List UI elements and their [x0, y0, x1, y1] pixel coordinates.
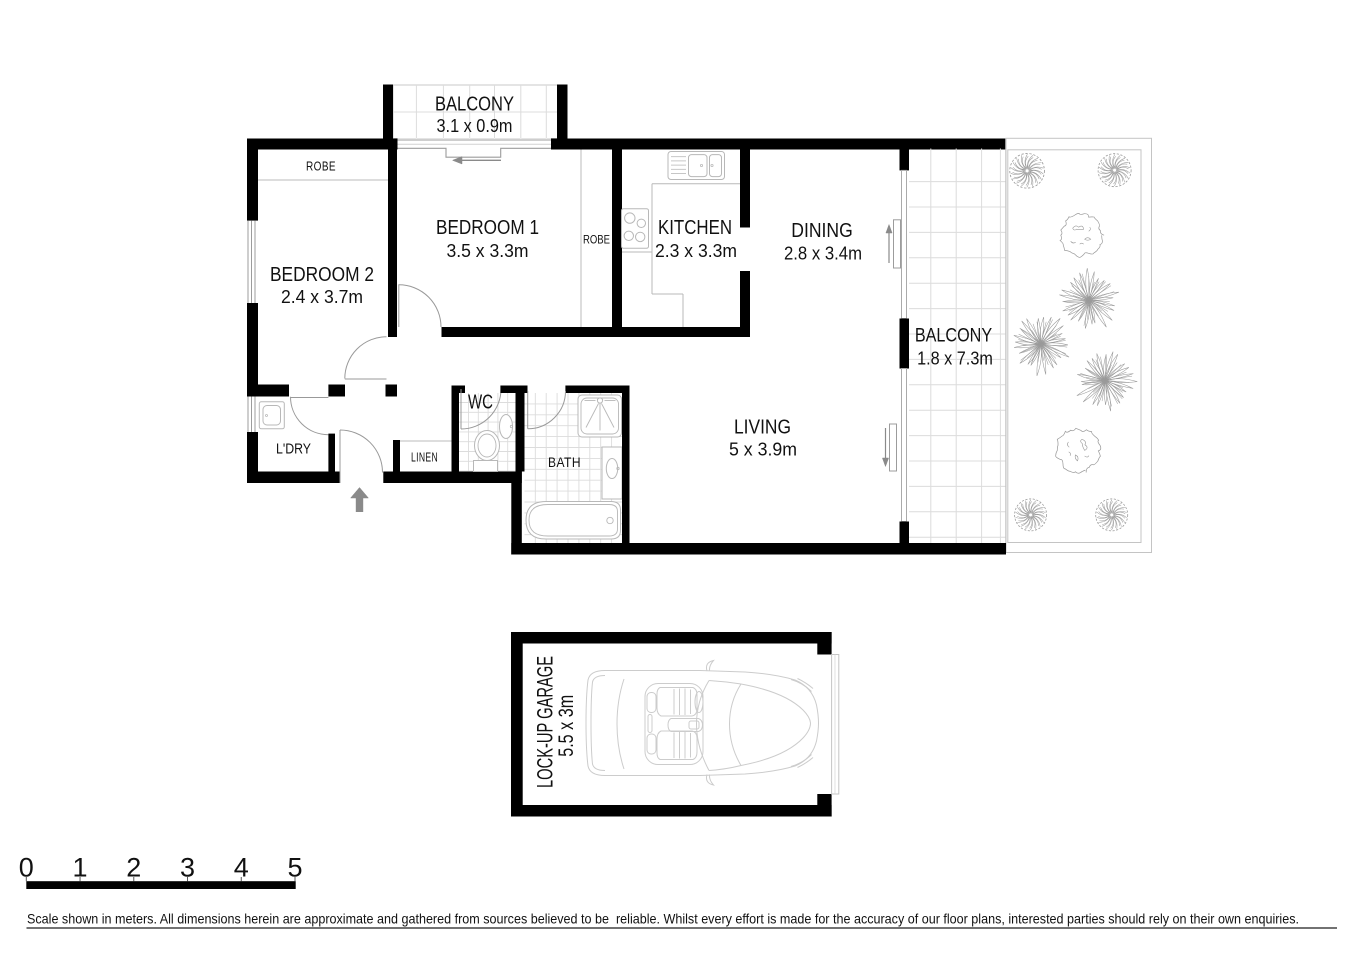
- svg-text:3.5 x 3.3m: 3.5 x 3.3m: [447, 241, 529, 261]
- svg-text:1.8 x 7.3m: 1.8 x 7.3m: [917, 349, 993, 369]
- svg-text:ROBE: ROBE: [306, 160, 336, 174]
- svg-text:LIVING: LIVING: [734, 417, 791, 439]
- svg-text:5 x 3.9m: 5 x 3.9m: [729, 440, 797, 460]
- svg-text:DINING: DINING: [791, 220, 853, 242]
- svg-text:5.5 x 3m: 5.5 x 3m: [555, 695, 578, 757]
- svg-text:2.8 x 3.4m: 2.8 x 3.4m: [784, 244, 862, 264]
- svg-text:KITCHEN: KITCHEN: [658, 217, 732, 239]
- svg-text:LINEN: LINEN: [411, 450, 438, 465]
- svg-text:BEDROOM 1: BEDROOM 1: [436, 217, 539, 239]
- svg-text:LOCK-UP GARAGE: LOCK-UP GARAGE: [533, 656, 558, 788]
- svg-text:WC: WC: [468, 392, 493, 414]
- svg-text:Scale shown in meters. All dim: Scale shown in meters. All dimensions he…: [27, 911, 1299, 927]
- svg-text:2.3 x 3.3m: 2.3 x 3.3m: [655, 241, 737, 261]
- svg-text:2.4 x 3.7m: 2.4 x 3.7m: [281, 287, 363, 307]
- svg-text:L'DRY: L'DRY: [276, 441, 311, 458]
- svg-text:BALCONY: BALCONY: [915, 326, 993, 347]
- svg-text:BEDROOM 2: BEDROOM 2: [270, 264, 374, 286]
- svg-text:3.1 x 0.9m: 3.1 x 0.9m: [437, 116, 513, 136]
- svg-text:ROBE: ROBE: [583, 235, 610, 247]
- svg-text:BALCONY: BALCONY: [435, 94, 514, 116]
- svg-text:BATH: BATH: [548, 455, 581, 470]
